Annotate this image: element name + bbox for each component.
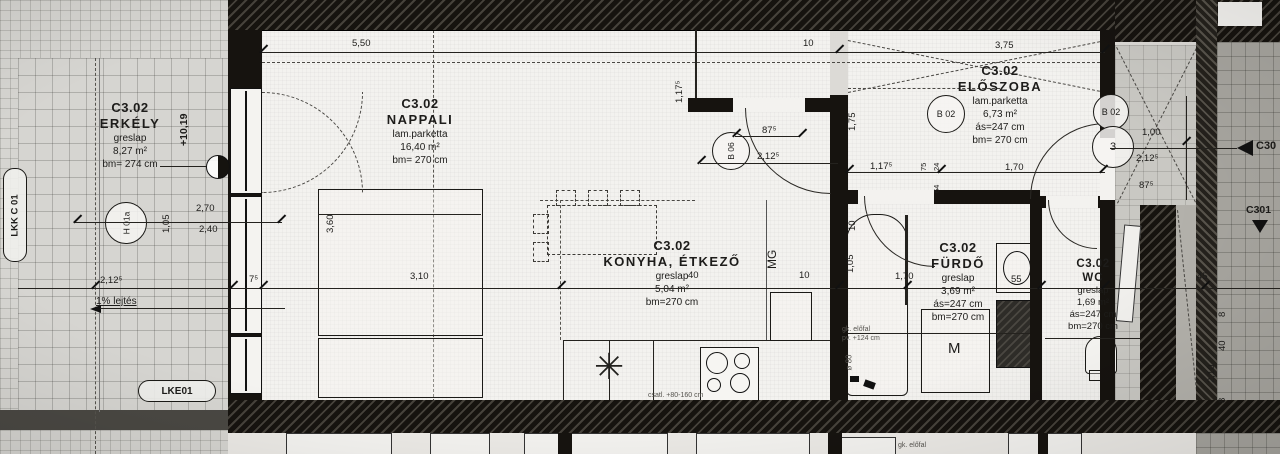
room-area: 1,69 m² [1068,297,1118,309]
door-tag-b02-entry: B 02 [1093,94,1129,130]
door-tag-label: 3 [1110,141,1116,153]
window [230,196,262,334]
room-floor: greslap [603,270,740,283]
balcony-upper-zone [0,0,228,58]
dimension-label: 2,40 [199,224,218,235]
dishwasher-label: MG [767,250,778,269]
chair-dashed [588,190,608,206]
kitchen-connection-note: csatl. +80-160 cm [648,392,703,401]
lower-unit-box [696,433,810,454]
door-size-label: 64 [932,185,941,193]
dishwasher-box [770,292,812,341]
balcony-bottom-edge [0,410,228,430]
door-tag-label: B 02 [937,109,956,119]
dimension-label: 3,75 [995,40,1014,51]
room-name: KONYHA, ÉTKEZŐ [603,253,740,270]
slope-label: 1% lejtés [96,296,137,307]
dimension-label: 87⁵ [762,125,777,136]
wall-opening [1218,2,1262,26]
room-label-konyha: C3.02 KONYHA, ÉTKEZŐ greslap 5,04 m² bm=… [603,238,740,309]
lower-unit-box [430,433,490,454]
room-code: C3.02 [931,240,985,255]
room-floor: greslap [931,272,985,285]
dimension-line [848,333,1030,334]
dimension-line [1045,338,1140,339]
level-leader-line [160,166,206,167]
door-tag-label: B 06 [726,142,736,160]
chair-dashed [533,242,549,262]
chair-dashed [533,214,549,234]
room-label-nappali: C3.02 NAPPALI lam.parketta 16,40 m² bm= … [387,96,454,167]
room-code: C3.02 [958,63,1042,78]
dimension-label: 87⁵ [1139,180,1154,191]
room-label-erkely: C3.02 ERKÉLY greslap 8,27 m² bm= 274 cm [100,100,161,171]
room-name: FÜRDŐ [931,255,985,272]
room-height: bm=270 cm [603,296,740,309]
dimension-line [1186,96,1187,200]
neighbor-unit-zone [1217,0,1280,433]
room-height: bm=270 cm [931,311,985,324]
door-size-label: 75 [919,163,928,171]
room-sus-height: ás=247 cm [958,121,1042,134]
dimension-label: 10 [803,38,814,49]
dimension-line [262,52,1105,53]
balustrade-tag-label: LKE01 [161,386,192,397]
stove-burner [706,352,728,374]
window [230,336,262,394]
dimension-label: 40 [688,270,699,281]
balustrade-tag-label: LKK C 01 [10,194,21,236]
lower-wall-stub [828,433,842,454]
dimension-line [700,163,838,164]
room-area: 5,04 m² [603,283,740,296]
section-marker-icon [1237,140,1253,156]
balustrade-tag-lke: LKE01 [138,380,216,402]
bed [318,189,483,336]
room-label-wc: C3.02 WC greslap 1,69 m² ás=247 cm bm=27… [1068,258,1118,333]
partition-line [695,30,697,98]
room-code: C3.02 [100,100,161,115]
door-tag-entry-number: 3 [1092,126,1134,168]
dimension-label: 3,10 [410,271,429,282]
slope-arrow-line [100,308,285,309]
dimension-label: 2,10 [1206,365,1217,384]
wall-block [1140,205,1176,405]
room-name: ERKÉLY [100,115,161,132]
room-code: C3.02 [1068,258,1118,271]
chair-dashed [620,190,640,206]
door-tag-h01a: H 01a [105,202,147,244]
dimension-label: 7⁵ [249,274,258,285]
lower-unit-box [836,437,896,454]
washer-label: M [948,340,961,357]
stove-burner [707,378,721,392]
room-name: WC [1068,271,1118,285]
dimension-label: 10 [847,220,858,231]
dimension-label: 8 [1217,398,1228,403]
exterior-wall-bottom [228,400,1280,433]
balcony-door [230,88,262,194]
room-area: 6,73 m² [958,108,1042,121]
dimension-label: 45 [1197,271,1208,282]
door-tag-label: B 02 [1102,107,1121,117]
room-label-eloszoba: C3.02 ELŐSZOBA lam.parketta 6,73 m² ás=2… [958,63,1042,147]
dimension-label: 10 [799,270,810,281]
interior-wall [1030,196,1042,405]
lower-wall-stub [558,433,572,454]
section-leader-line [1110,148,1237,149]
lower-unit-box [286,433,392,454]
room-name: NAPPALI [387,111,454,128]
dimension-label: 1,17⁵ [870,161,892,172]
kitchen-right-line [766,200,767,340]
dimension-label: 1,05 [161,215,172,234]
stove-burner [730,373,750,393]
balustrade-tag-lkk: LKK C 01 [3,168,27,262]
dimension-line [735,136,800,137]
bathtub-faucet [850,376,859,382]
sink-symbol: ✳ [594,349,624,385]
room-floor: greslap [100,132,161,145]
room-label-furdo: C3.02 FÜRDŐ greslap 3,69 m² ás=247 cm bm… [931,240,985,324]
dimension-line [848,172,1105,173]
room-height: bm= 274 cm [100,158,161,171]
sofa-bench [318,338,483,398]
dimension-label: 1,17⁵ [674,81,685,103]
dimension-line [18,288,1280,289]
drain-diameter-note: ø 80 [846,354,855,370]
door-tag-label: H 01a [121,212,131,235]
section-marker-label: C301 [1246,205,1271,216]
stove-burner [734,353,750,369]
room-sus-height: ás=247 cm [1068,309,1118,321]
room-height: bm= 270 cm [958,134,1042,147]
level-value: +10,19 [179,114,190,146]
room-height: bm=270 cm [1068,321,1118,333]
dimension-label: 5,50 [352,38,371,49]
bed-headboard-line [318,214,481,215]
balcony-below-strip [0,430,228,454]
dimension-label: 2,70 [196,203,215,214]
dimension-label: 1,00 [1142,127,1161,138]
section-marker-label: C30 [1256,141,1276,152]
floor-plan: ✳ C3.02 ER [0,0,1280,454]
dimension-label: 2,12⁵ [1136,153,1158,164]
axis-dashdot-line [95,58,96,454]
room-area: 16,40 m² [387,141,454,154]
exterior-wall-right [1100,30,1115,405]
dimension-label: 55 [1011,274,1022,285]
dimension-label: 40 [1217,340,1228,351]
dimension-line [75,222,282,223]
slope-arrow-icon [90,305,101,313]
door-tag-b02-hall: B 02 [927,95,965,133]
dimension-label: 2,12⁵ [100,275,122,286]
dimension-label: 2,12⁵ [757,151,779,162]
room-area: 8,27 m² [100,145,161,158]
exterior-wall-top [228,0,1115,31]
room-sus-height: ás=247 cm [931,298,985,311]
drywall-note-line2: pv. +124 cm [842,335,880,344]
room-floor: greslap [1068,285,1118,297]
dimension-label: 1,75 [847,113,858,132]
room-floor: lam.parketta [387,128,454,141]
dimension-label: 8 [1217,312,1228,317]
door-tag-b06: B 06 [712,132,750,170]
section-marker-icon [1252,220,1268,233]
room-code: C3.02 [603,238,740,253]
room-height: bm= 270 cm [387,154,454,167]
dimension-label: 1,05 [845,255,856,274]
drywall-note-below: gk. előfal [898,442,926,451]
lower-wall-stub [1038,433,1048,454]
room-area: 3,69 m² [931,285,985,298]
room-code: C3.02 [387,96,454,111]
level-marker-icon [206,155,230,179]
lower-unit-box [524,433,668,454]
kitchen-counter-divider [653,340,654,400]
dimension-label: 3,60 [325,215,336,234]
kitchen-counter-divider [563,340,564,400]
room-floor: lam.parketta [958,95,1042,108]
neighbor-lower-strip [1196,433,1280,454]
room-name: ELŐSZOBA [958,78,1042,95]
chair-dashed [556,190,576,206]
